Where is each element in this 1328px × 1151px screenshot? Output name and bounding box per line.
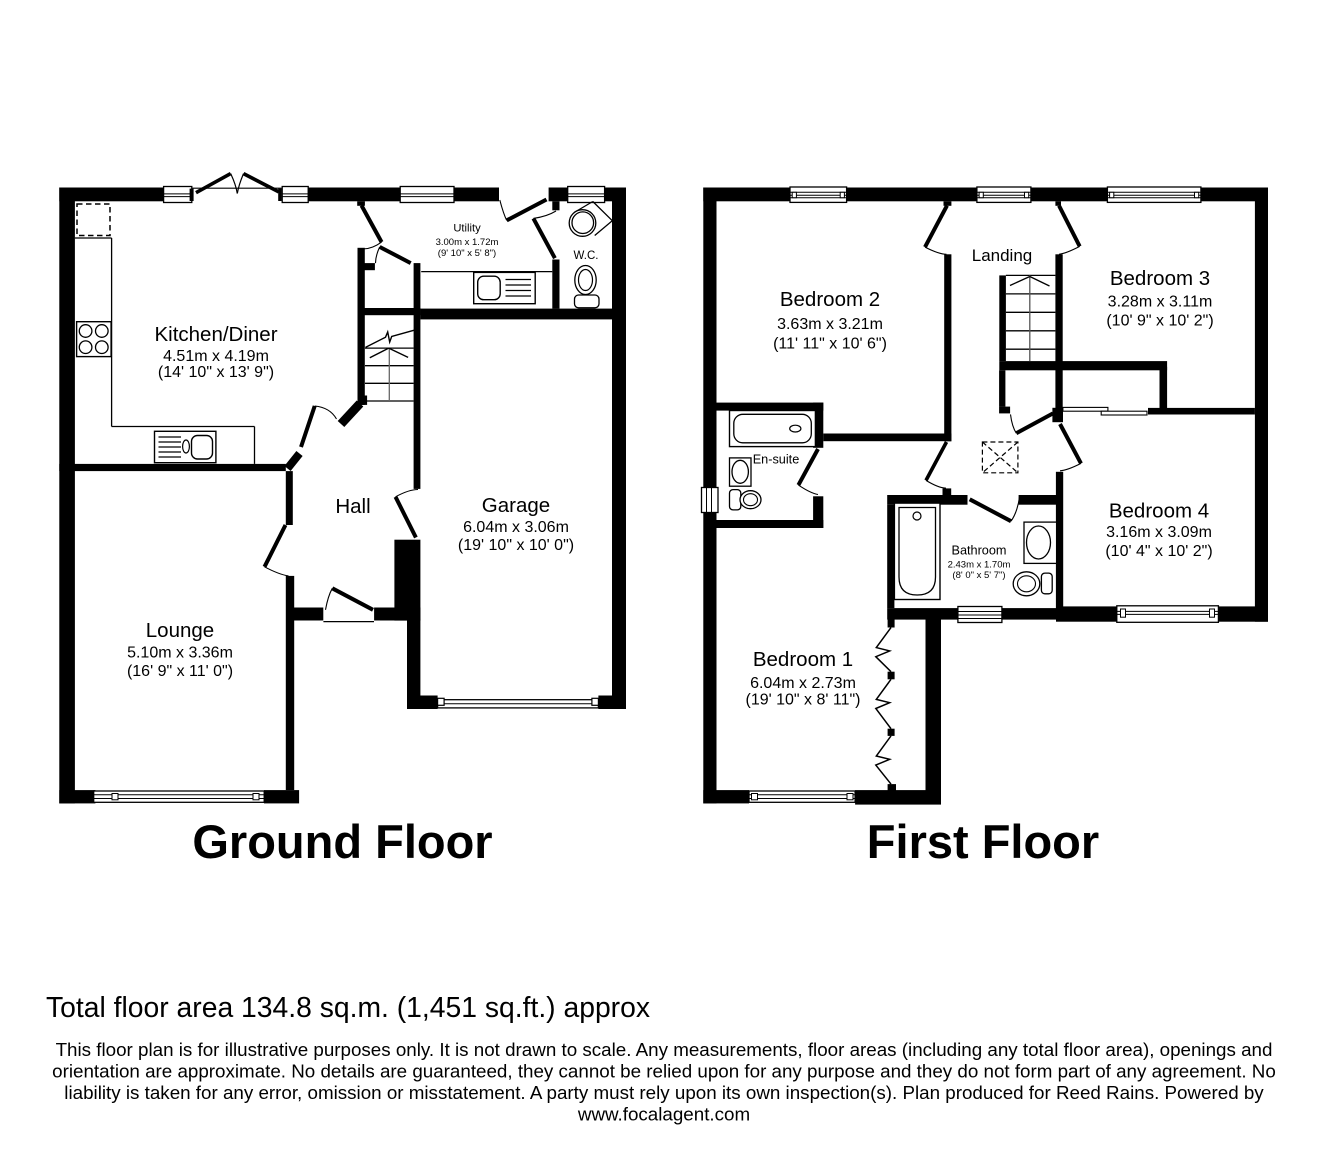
svg-text:Kitchen/Diner: Kitchen/Diner bbox=[154, 323, 277, 346]
svg-text:Ground Floor: Ground Floor bbox=[192, 815, 492, 868]
svg-text:Lounge: Lounge bbox=[146, 619, 214, 642]
svg-text:Hall: Hall bbox=[335, 495, 370, 518]
svg-text:(10' 9" x 10' 2"): (10' 9" x 10' 2") bbox=[1106, 313, 1213, 330]
svg-text:(19' 10" x 8' 11"): (19' 10" x 8' 11") bbox=[745, 692, 860, 709]
svg-text:Bedroom 2: Bedroom 2 bbox=[780, 288, 880, 311]
svg-text:3.16m x 3.09m: 3.16m x 3.09m bbox=[1106, 524, 1212, 541]
svg-text:Garage: Garage bbox=[482, 494, 550, 517]
svg-text:W.C.: W.C. bbox=[574, 250, 599, 262]
svg-text:2.43m x 1.70m: 2.43m x 1.70m bbox=[948, 560, 1011, 571]
svg-text:5.10m x 3.36m: 5.10m x 3.36m bbox=[127, 645, 233, 662]
svg-text:Bedroom 4: Bedroom 4 bbox=[1109, 500, 1209, 523]
svg-text:4.51m x 4.19m: 4.51m x 4.19m bbox=[163, 348, 269, 365]
svg-text:(19' 10" x 10' 0"): (19' 10" x 10' 0") bbox=[458, 537, 574, 554]
svg-text:orientation are approximate. N: orientation are approximate. No details … bbox=[52, 1061, 1276, 1082]
svg-text:6.04m x 3.06m: 6.04m x 3.06m bbox=[463, 519, 569, 536]
svg-text:6.04m x 2.73m: 6.04m x 2.73m bbox=[750, 675, 856, 692]
svg-text:First Floor: First Floor bbox=[867, 815, 1099, 868]
svg-text:(16' 9" x 11' 0"): (16' 9" x 11' 0") bbox=[127, 663, 233, 680]
svg-text:Bedroom 3: Bedroom 3 bbox=[1110, 267, 1210, 290]
svg-text:Landing: Landing bbox=[972, 246, 1033, 265]
svg-text:Bedroom 1: Bedroom 1 bbox=[753, 648, 853, 671]
svg-text:Total floor area 134.8 sq.m. (: Total floor area 134.8 sq.m. (1,451 sq.f… bbox=[46, 991, 650, 1023]
svg-text:Utility: Utility bbox=[453, 223, 481, 235]
svg-text:www.focalagent.com: www.focalagent.com bbox=[577, 1104, 750, 1125]
svg-text:En-suite: En-suite bbox=[753, 453, 800, 467]
svg-text:liability is taken for any err: liability is taken for any error, omissi… bbox=[64, 1082, 1264, 1103]
svg-text:This floor plan is for illustr: This floor plan is for illustrative purp… bbox=[56, 1039, 1273, 1060]
svg-text:3.00m x 1.72m: 3.00m x 1.72m bbox=[436, 237, 499, 248]
svg-text:(14' 10" x 13' 9"): (14' 10" x 13' 9") bbox=[158, 364, 274, 381]
svg-text:(9' 10" x 5' 8"): (9' 10" x 5' 8") bbox=[438, 248, 496, 259]
svg-text:(10' 4" x 10' 2"): (10' 4" x 10' 2") bbox=[1105, 543, 1212, 560]
svg-text:3.63m x 3.21m: 3.63m x 3.21m bbox=[777, 316, 883, 333]
svg-text:3.28m x 3.11m: 3.28m x 3.11m bbox=[1108, 294, 1213, 311]
svg-text:(11' 11" x 10' 6"): (11' 11" x 10' 6") bbox=[773, 336, 887, 353]
svg-text:(8' 0" x 5' 7"): (8' 0" x 5' 7") bbox=[952, 570, 1005, 581]
svg-text:Bathroom: Bathroom bbox=[951, 544, 1006, 558]
